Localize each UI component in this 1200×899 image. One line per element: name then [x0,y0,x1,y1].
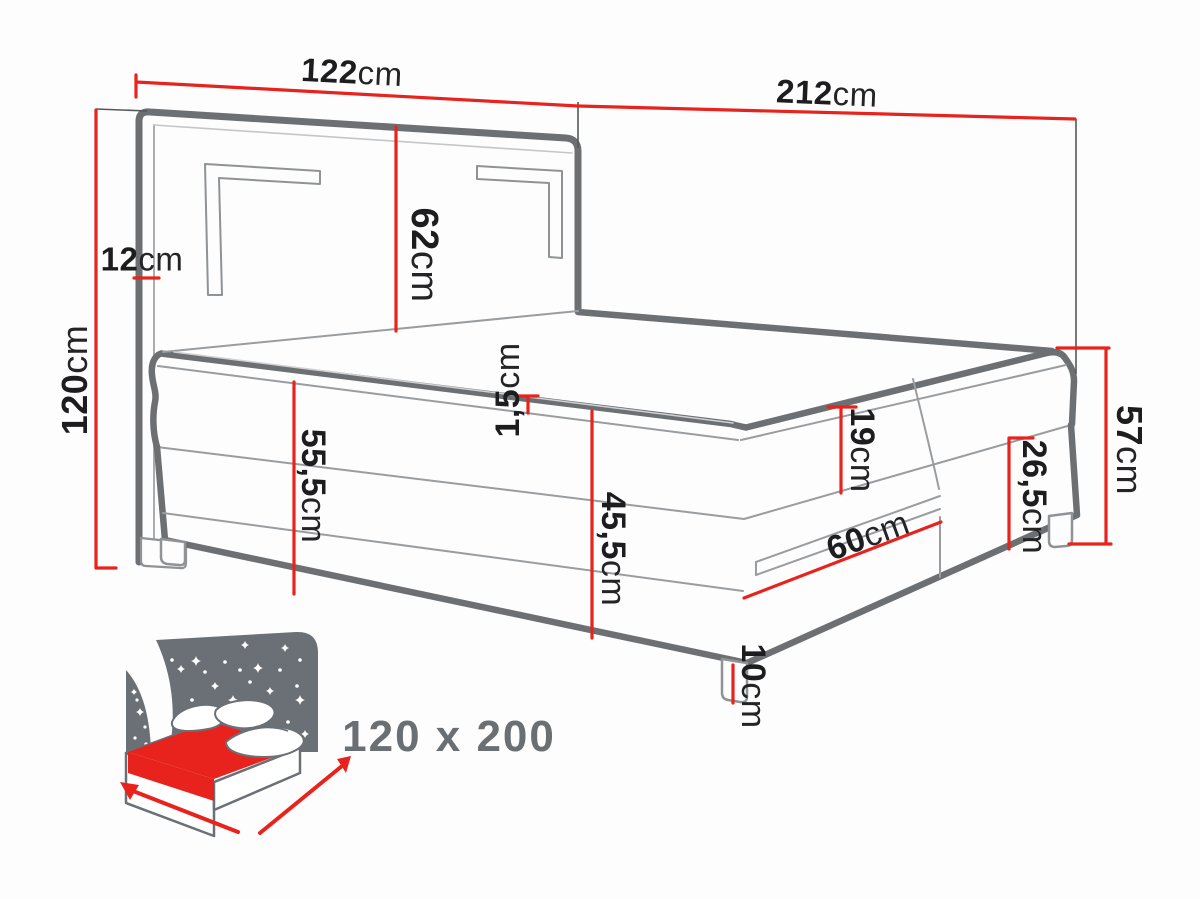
dimension-label-10cm: 10cm [736,643,770,728]
size-badge: 120 x 200 [342,712,556,762]
dim-62-unit: cm [403,251,445,303]
dim-10-value: 10 [734,643,772,682]
dimension-label-45-5cm: 45,5cm [596,492,630,607]
extension-lines [96,102,1076,374]
mattress-top-crease [174,352,733,423]
dim-57-unit: cm [1109,446,1150,495]
dim-212-unit: cm [832,75,879,114]
dim-12-unit: cm [138,241,183,278]
dim-45-5-unit: cm [594,560,632,606]
dim-62-value: 62 [403,208,445,251]
bed-leg-left [161,539,185,565]
dimension-label-212cm: 212cm [776,74,879,111]
mattress-topper-seam-foot [741,365,1066,440]
dim-57-value: 57 [1109,405,1150,446]
dim-120-value: 120 [54,374,95,436]
dimension-label-62cm: 62cm [405,208,443,303]
dim-line-120 [96,110,116,568]
dim-122-value: 122 [300,51,358,91]
headboard-inner-line-top [154,125,572,153]
dim-212-value: 212 [775,72,833,111]
dim-26-5-value: 26,5 [1015,440,1053,508]
dim-12-value: 12 [101,241,139,278]
led-bracket-right [477,166,562,258]
dim-10-unit: cm [734,682,772,728]
dimension-label-12cm: 12cm [101,243,184,276]
dim-1-5-value: 1,5 [489,389,527,438]
dim-55-5-value: 55,5 [294,429,332,497]
dimension-label-122cm: 122cm [300,53,403,91]
dimension-label-120cm: 120cm [57,325,93,436]
led-bracket-left [205,164,320,295]
dim-1-5-unit: cm [489,342,527,388]
dimension-label-1-5cm: 1,5cm [491,342,525,437]
base-drawer-seam-front [163,513,743,591]
dimension-label-55-5cm: 55,5cm [296,429,330,544]
dim-122-unit: cm [357,54,404,93]
dimension-label-26-5cm: 26,5cm [1017,440,1051,555]
dimension-label-57cm: 57cm [1111,405,1147,495]
bed-dimension-diagram: 122cm 212cm 120cm 12cm 62cm 1,5cm 55,5cm… [0,0,1200,899]
dim-26-5-unit: cm [1015,508,1053,554]
mattress-topper-seam-front [158,366,738,440]
dim-45-5-value: 45,5 [594,492,632,560]
bed-line-drawing [139,112,1077,702]
bed-size-icon [120,632,351,836]
extension-line-top-left [96,109,147,111]
dim-120-unit: cm [54,325,95,374]
dim-55-5-unit: cm [294,497,332,543]
dim-19-unit: cm [843,446,881,492]
dim-19-value: 19 [843,407,881,446]
mattress-back-edge [578,312,1052,351]
icon-pillow-right [215,700,274,728]
dimension-label-19cm: 19cm [845,407,879,492]
